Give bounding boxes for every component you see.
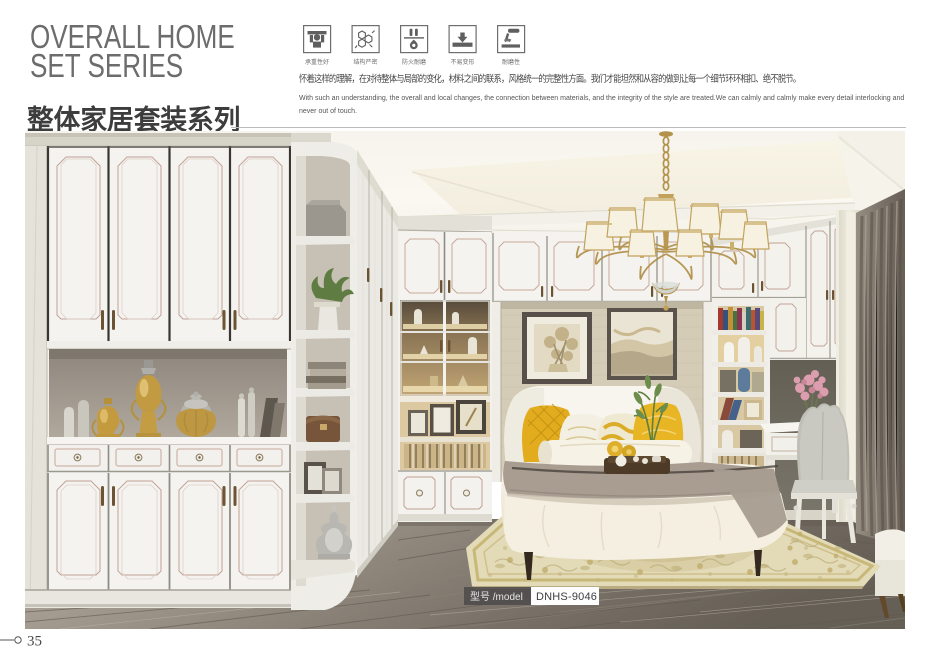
svg-text:35: 35 bbox=[27, 634, 42, 650]
svg-text:耐磨性: 耐磨性 bbox=[502, 58, 520, 66]
svg-text:防火耐磨: 防火耐磨 bbox=[402, 58, 426, 66]
svg-text:型号 /model: 型号 /model bbox=[470, 590, 523, 603]
svg-text:不易变形: 不易变形 bbox=[450, 58, 474, 66]
svg-text:承重性好: 承重性好 bbox=[305, 58, 329, 66]
svg-text:结构严密: 结构严密 bbox=[353, 58, 377, 66]
svg-text:DNHS-9046: DNHS-9046 bbox=[536, 591, 597, 603]
